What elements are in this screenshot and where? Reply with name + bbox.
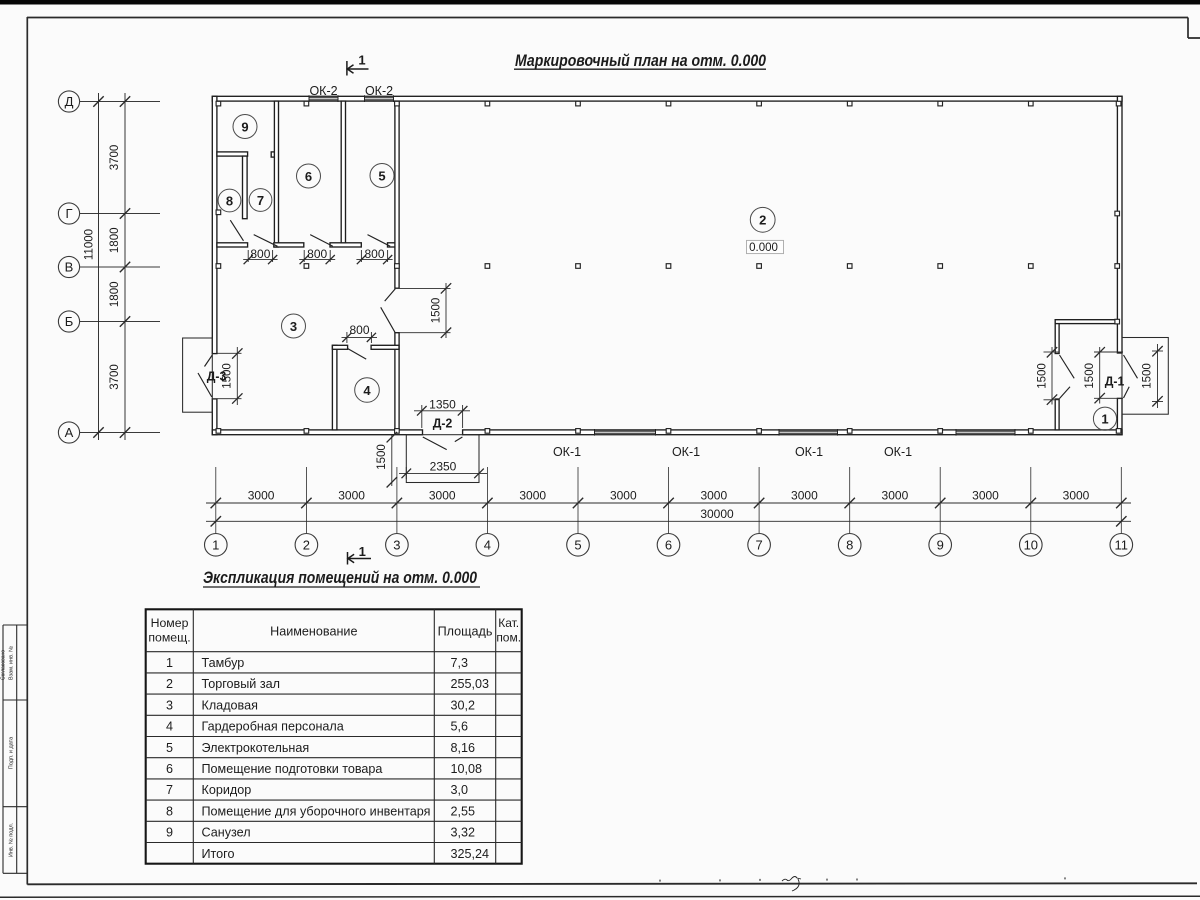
svg-text:Тамбур: Тамбур <box>202 656 245 670</box>
svg-text:Площадь: Площадь <box>438 625 493 639</box>
svg-text:3000: 3000 <box>429 489 456 503</box>
svg-text:800: 800 <box>364 247 384 261</box>
svg-text:0.000: 0.000 <box>749 242 778 254</box>
svg-text:8,16: 8,16 <box>451 741 476 755</box>
svg-text:5: 5 <box>378 168 385 183</box>
svg-text:Номер: Номер <box>151 616 189 630</box>
svg-text:1800: 1800 <box>109 282 121 308</box>
svg-text:Д: Д <box>65 94 74 109</box>
svg-text:3000: 3000 <box>248 489 275 503</box>
svg-text:Г: Г <box>65 206 72 221</box>
svg-text:Гардеробная персонала: Гардеробная персонала <box>202 720 344 734</box>
svg-text:3000: 3000 <box>882 489 909 503</box>
svg-text:7: 7 <box>257 193 264 208</box>
svg-text:8: 8 <box>166 804 173 818</box>
svg-text:10,08: 10,08 <box>451 762 483 776</box>
svg-text:800: 800 <box>349 323 369 337</box>
svg-text:Кладовая: Кладовая <box>202 698 258 712</box>
svg-text:1800: 1800 <box>109 228 121 254</box>
svg-text:Итого: Итого <box>202 847 235 861</box>
svg-text:11: 11 <box>1115 537 1129 552</box>
svg-text:325,24: 325,24 <box>451 847 490 861</box>
svg-text:2,55: 2,55 <box>451 804 476 818</box>
svg-text:3000: 3000 <box>519 489 546 503</box>
svg-text:ОК-1: ОК-1 <box>795 445 823 459</box>
svg-text:3700: 3700 <box>109 364 121 390</box>
svg-text:Экспликация помещений на отм.: Экспликация помещений на отм. 0.000 <box>203 568 478 587</box>
svg-text:Помещение для уборочного инвен: Помещение для уборочного инвентаря <box>202 804 431 818</box>
svg-text:Коридор: Коридор <box>202 783 252 797</box>
svg-text:3000: 3000 <box>791 489 818 503</box>
svg-text:9: 9 <box>937 537 944 552</box>
svg-text:800: 800 <box>307 247 327 261</box>
svg-text:ОК-1: ОК-1 <box>672 445 700 459</box>
svg-text:1500: 1500 <box>376 444 388 470</box>
svg-text:30,2: 30,2 <box>451 698 476 712</box>
svg-text:1: 1 <box>212 537 219 552</box>
svg-text:5: 5 <box>166 741 173 755</box>
svg-text:помещ.: помещ. <box>148 631 190 645</box>
svg-text:3700: 3700 <box>109 145 121 171</box>
svg-text:1500: 1500 <box>1084 363 1096 389</box>
svg-text:2: 2 <box>166 677 173 691</box>
svg-text:1350: 1350 <box>429 398 456 412</box>
svg-text:Взам. инв. №: Взам. инв. № <box>9 646 15 680</box>
svg-text:30000: 30000 <box>700 507 734 521</box>
svg-text:9: 9 <box>241 119 248 134</box>
svg-text:А: А <box>65 425 74 440</box>
svg-text:пом.: пом. <box>496 631 521 645</box>
svg-text:3000: 3000 <box>972 489 999 503</box>
svg-text:2: 2 <box>303 537 310 552</box>
svg-text:Помещение подготовки товара: Помещение подготовки товара <box>202 762 383 776</box>
svg-text:4: 4 <box>363 383 371 398</box>
svg-text:4: 4 <box>484 537 491 552</box>
svg-text:Торговый зал: Торговый зал <box>202 677 280 691</box>
svg-text:7: 7 <box>755 537 762 552</box>
svg-text:3: 3 <box>290 319 297 334</box>
svg-text:3000: 3000 <box>610 489 637 503</box>
svg-text:4: 4 <box>166 720 173 734</box>
svg-text:Д-1: Д-1 <box>1105 374 1125 389</box>
svg-text:ОК-2: ОК-2 <box>365 84 393 98</box>
svg-text:255,03: 255,03 <box>451 677 490 691</box>
svg-text:Кат.: Кат. <box>498 616 519 630</box>
svg-text:Согласовано: Согласовано <box>1 650 7 680</box>
svg-text:11000: 11000 <box>84 229 96 260</box>
svg-text:1500: 1500 <box>1142 363 1154 389</box>
svg-text:6: 6 <box>166 762 173 776</box>
svg-text:3,32: 3,32 <box>451 826 476 840</box>
svg-text:Д-2: Д-2 <box>433 416 453 431</box>
svg-text:7: 7 <box>166 783 173 797</box>
svg-text:Подп. и дата: Подп. и дата <box>9 736 15 769</box>
svg-text:3: 3 <box>393 537 400 552</box>
svg-text:2350: 2350 <box>430 459 457 473</box>
svg-text:3000: 3000 <box>1063 489 1090 503</box>
svg-text:Маркировочный план на отм. 0.0: Маркировочный план на отм. 0.000 <box>515 51 767 70</box>
svg-text:8: 8 <box>846 537 853 552</box>
svg-text:ОК-2: ОК-2 <box>309 84 337 98</box>
svg-text:6: 6 <box>665 537 672 552</box>
svg-text:2: 2 <box>759 213 766 228</box>
svg-text:Электрокотельная: Электрокотельная <box>202 741 310 755</box>
svg-text:6: 6 <box>305 169 312 184</box>
svg-text:1500: 1500 <box>1036 363 1048 389</box>
svg-text:Инв. № подл.: Инв. № подл. <box>9 822 15 857</box>
svg-text:800: 800 <box>250 247 270 261</box>
svg-text:1: 1 <box>359 544 366 559</box>
svg-text:ОК-1: ОК-1 <box>553 445 581 459</box>
svg-text:Наименование: Наименование <box>270 625 357 639</box>
svg-text:10: 10 <box>1024 537 1038 552</box>
svg-text:Б: Б <box>65 314 74 329</box>
svg-text:В: В <box>65 260 74 275</box>
svg-text:9: 9 <box>166 826 173 840</box>
svg-text:1: 1 <box>166 656 173 670</box>
svg-text:1500: 1500 <box>222 363 234 389</box>
svg-text:1: 1 <box>1101 412 1108 427</box>
svg-text:3000: 3000 <box>338 489 365 503</box>
svg-text:3: 3 <box>166 698 173 712</box>
svg-text:1: 1 <box>358 53 365 68</box>
svg-text:7,3: 7,3 <box>451 656 469 670</box>
svg-text:3,0: 3,0 <box>451 783 469 797</box>
svg-text:1500: 1500 <box>430 298 442 324</box>
svg-text:8: 8 <box>226 193 233 208</box>
svg-text:Санузел: Санузел <box>202 826 251 840</box>
svg-text:5,6: 5,6 <box>451 720 469 734</box>
svg-text:3000: 3000 <box>700 489 727 503</box>
svg-text:ОК-1: ОК-1 <box>884 445 912 459</box>
svg-text:5: 5 <box>574 537 581 552</box>
